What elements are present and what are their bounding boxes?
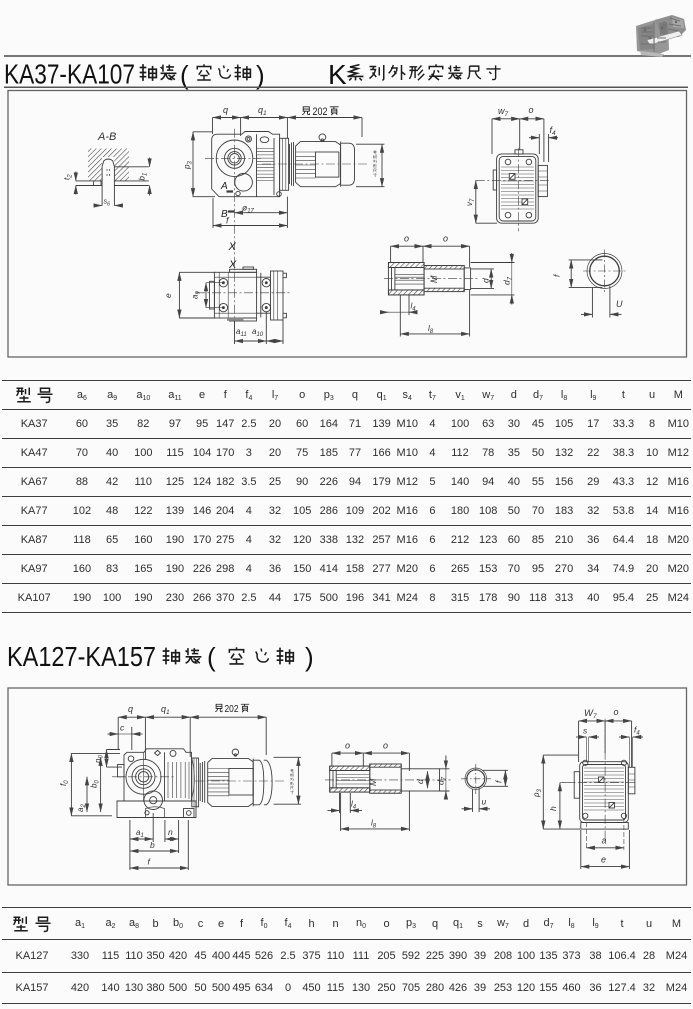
- svg-text:s6: s6: [104, 199, 112, 208]
- svg-text:o: o: [383, 741, 388, 751]
- svg-text:f4: f4: [634, 725, 640, 737]
- svg-text:t2: t2: [63, 174, 74, 180]
- svg-text:X: X: [228, 241, 237, 253]
- svg-text:A: A: [220, 181, 228, 192]
- svg-text:b1: b1: [138, 173, 149, 181]
- svg-text:W7: W7: [584, 708, 597, 720]
- svg-text:(: (: [207, 642, 216, 672]
- svg-text:h: h: [548, 806, 558, 811]
- svg-text:u: u: [482, 797, 487, 807]
- svg-text:a9: a9: [191, 291, 202, 299]
- svg-text:202: 202: [313, 106, 328, 118]
- svg-text:f: f: [552, 273, 562, 277]
- svg-text:n: n: [168, 827, 173, 837]
- svg-text:e: e: [601, 855, 606, 865]
- svg-text:f: f: [494, 779, 504, 783]
- svg-text:U: U: [616, 299, 623, 309]
- svg-text:q: q: [223, 105, 228, 115]
- svg-text:KA127-KA157: KA127-KA157: [7, 641, 156, 672]
- svg-text:f: f: [148, 857, 152, 867]
- svg-text:b: b: [150, 840, 155, 850]
- svg-text:): ): [305, 642, 314, 672]
- svg-text:s: s: [583, 726, 588, 736]
- svg-text:a10: a10: [252, 327, 264, 338]
- svg-text:KA37-KA107: KA37-KA107: [4, 59, 135, 90]
- svg-text:M: M: [368, 778, 378, 786]
- svg-text:p3: p3: [183, 161, 194, 170]
- svg-text:b0: b0: [90, 780, 101, 788]
- svg-text:l4: l4: [411, 302, 417, 313]
- svg-text:A-B: A-B: [97, 131, 116, 143]
- svg-text:o: o: [529, 105, 534, 115]
- svg-text:o: o: [443, 234, 448, 244]
- svg-text:K: K: [328, 59, 347, 90]
- svg-text:q1: q1: [161, 704, 170, 716]
- svg-text:f4: f4: [550, 125, 557, 137]
- svg-text:q1: q1: [258, 105, 267, 117]
- svg-text:c: c: [120, 723, 125, 733]
- svg-text:w7: w7: [498, 106, 509, 118]
- svg-text:f: f: [226, 216, 230, 226]
- svg-text:202: 202: [225, 704, 239, 715]
- svg-text:M: M: [429, 275, 439, 283]
- svg-text:a11: a11: [236, 327, 247, 338]
- svg-text:): ): [256, 60, 265, 90]
- svg-text:e: e: [163, 293, 173, 298]
- svg-text:l8: l8: [371, 819, 377, 830]
- svg-text:d: d: [415, 779, 425, 784]
- svg-text:l4: l4: [351, 800, 357, 811]
- svg-text:p3: p3: [532, 789, 543, 798]
- svg-text:l8: l8: [428, 324, 434, 335]
- svg-text:o: o: [345, 741, 350, 751]
- svg-text:d: d: [481, 278, 491, 283]
- svg-text:o: o: [614, 707, 619, 717]
- svg-text:o: o: [404, 234, 409, 244]
- svg-text:a: a: [602, 836, 607, 846]
- svg-text:n0: n0: [94, 755, 105, 763]
- svg-text:f0: f0: [59, 780, 70, 786]
- svg-text:q: q: [128, 704, 133, 714]
- svg-text:(: (: [180, 60, 189, 90]
- svg-text:a1: a1: [136, 828, 144, 839]
- svg-text:a2: a2: [76, 804, 87, 812]
- svg-text:v7: v7: [465, 198, 476, 206]
